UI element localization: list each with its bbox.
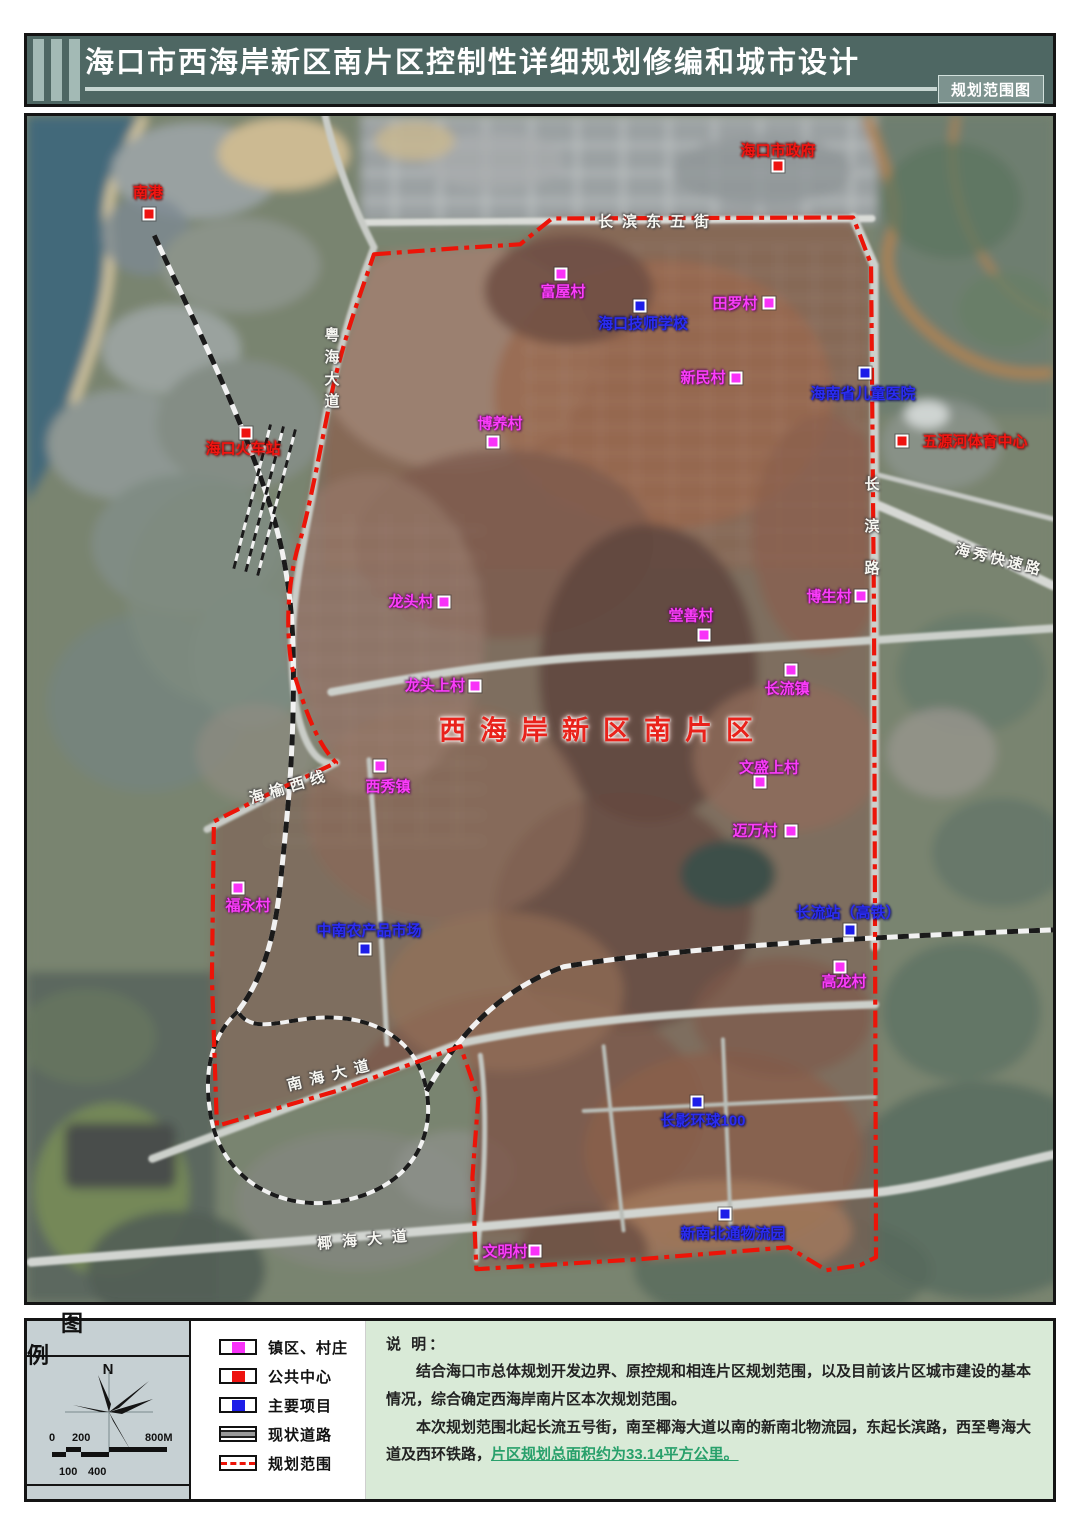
- map-label-changliu-hsr-station: 长流站（高铁）: [795, 906, 900, 921]
- map-label-haikou-railway-station: 海口火车站: [205, 442, 280, 457]
- legend-swatch-planning-scope: [219, 1455, 257, 1471]
- notes-paragraph-2: 本次规划范围北起长流五号街，南至椰海大道以南的新南北物流园，东起长滨路，西至粤海…: [386, 1414, 1035, 1470]
- map-label-longtoushang-village: 龙头上村: [405, 679, 465, 694]
- map-label-hainan-children-hospital: 海南省儿童医院: [810, 387, 915, 402]
- title-stripes-decoration: [33, 39, 80, 101]
- map-marker-changliu-hsr-station: [844, 924, 857, 937]
- notes-paragraph-1: 结合海口市总体规划开发边界、原控规和相连片区规划范围，以及目前该片区城市建设的基…: [386, 1358, 1035, 1414]
- legend-footer-band: [27, 1484, 189, 1499]
- map-label-longtou-village: 龙头村: [388, 595, 433, 610]
- legend-swatch-existing-road: [219, 1426, 257, 1442]
- legend-item-town-village: 镇区、村庄: [219, 1335, 365, 1359]
- map-label-wenming-village: 文明村: [482, 1245, 527, 1260]
- map-marker-wuyuanhe-sports: [896, 435, 909, 448]
- map-label-haiyu-west-line: 海榆西线: [248, 768, 333, 807]
- map-label-haixiu-expressway: 海秀快速路: [954, 542, 1045, 578]
- legend-swatch-town-village: [219, 1339, 257, 1355]
- map-labels-layer: 南港海口市政府海口火车站五源河体育中心富屋村田罗村新民村博养村龙头村堂善村博生村…: [27, 116, 1053, 1302]
- map-label-nangang: 南港: [133, 186, 163, 201]
- legend-title: 图 例: [27, 1321, 189, 1357]
- legend-swatch-major-project: [219, 1397, 257, 1413]
- map-label-xinmin-village: 新民村: [680, 371, 725, 386]
- map-label-tangshan-village: 堂善村: [668, 609, 713, 624]
- map-marker-wenshengshang-village: [754, 776, 767, 789]
- map-label-fuwu-village: 富屋村: [540, 285, 585, 300]
- map-label-yuehai-avenue: 粤海大道: [324, 327, 339, 415]
- map-marker-haikou-railway-station: [240, 427, 253, 440]
- map-marker-xinmin-village: [730, 372, 743, 385]
- legend-item-label: 主要项目: [268, 1395, 332, 1416]
- map-marker-haikou-gov: [772, 160, 785, 173]
- map-label-xinnanbei-logistics: 新南北通物流园: [680, 1227, 785, 1242]
- notes-panel: 说 明： 结合海口市总体规划开发边界、原控规和相连片区规划范围，以及目前该片区城…: [366, 1321, 1053, 1499]
- map-marker-changying-global-100: [691, 1096, 704, 1109]
- map-label-nanhai-avenue: 南海大道: [286, 1057, 379, 1094]
- map-marker-nangang: [143, 208, 156, 221]
- map-marker-tianluo-village: [763, 297, 776, 310]
- legend-item-existing-road: 现状道路: [219, 1422, 365, 1446]
- map-label-yehai-avenue: 椰海大道: [317, 1228, 418, 1252]
- map-marker-gaolong-village: [834, 961, 847, 974]
- map-marker-xixiu-town: [374, 760, 387, 773]
- legend-item-label: 规划范围: [268, 1453, 332, 1474]
- legend-item-label: 镇区、村庄: [268, 1337, 348, 1358]
- map-marker-haikou-technician-school: [634, 300, 647, 313]
- map-label-zhongnan-farm-market: 中南农产品市场: [316, 924, 421, 939]
- map-marker-tangshan-village: [698, 629, 711, 642]
- legend-item-planning-scope: 规划范围: [219, 1451, 365, 1475]
- map-label-xixiu-town: 西秀镇: [365, 780, 410, 795]
- map-type-badge: 规划范围图: [938, 75, 1044, 103]
- map-label-tianluo-village: 田罗村: [712, 297, 757, 312]
- legend-panel: 图 例 N 0 200 800M 10: [24, 1318, 1056, 1502]
- map-marker-changliu-town: [785, 664, 798, 677]
- map-label-gaolong-village: 高龙村: [821, 975, 866, 990]
- map-marker-boyang-village: [487, 436, 500, 449]
- map-label-boyang-village: 博养村: [477, 417, 522, 432]
- map-label-wenshengshang-village: 文盛上村: [739, 761, 799, 776]
- map-marker-fuyong-village: [232, 882, 245, 895]
- map-marker-fuwu-village: [555, 268, 568, 281]
- scale-bar: 0 200 800M 100 400: [39, 1432, 179, 1478]
- map-label-changying-global-100: 长影环球100: [660, 1114, 745, 1129]
- map-marker-maiwan-village: [785, 825, 798, 838]
- titlebar: 海口市西海岸新区南片区控制性详细规划修编和城市设计 规划范围图: [24, 33, 1056, 107]
- legend-swatch-public-center: [219, 1368, 257, 1384]
- map-label-wuyuanhe-sports: 五源河体育中心: [922, 435, 1027, 450]
- map-marker-xinnanbei-logistics: [719, 1208, 732, 1221]
- map-label-area-name: 西海岸新区南片区: [439, 718, 767, 745]
- legend-item-public-center: 公共中心: [219, 1364, 365, 1388]
- legend-item-label: 公共中心: [268, 1366, 332, 1387]
- legend-item-major-project: 主要项目: [219, 1393, 365, 1417]
- satellite-map: 南港海口市政府海口火车站五源河体育中心富屋村田罗村新民村博养村龙头村堂善村博生村…: [24, 113, 1056, 1305]
- title-underline: [85, 87, 937, 91]
- map-label-bosheng-village: 博生村: [806, 590, 851, 605]
- page-title: 海口市西海岸新区南片区控制性详细规划修编和城市设计: [85, 49, 937, 78]
- map-marker-longtoushang-village: [469, 680, 482, 693]
- scale-bar-segments: [52, 1447, 167, 1457]
- map-marker-wenming-village: [529, 1245, 542, 1258]
- map-marker-zhongnan-farm-market: [359, 943, 372, 956]
- map-label-haikou-gov: 海口市政府: [740, 144, 815, 159]
- map-label-changbin-east-5th-st: 长滨东五街: [598, 215, 718, 230]
- map-label-fuyong-village: 福永村: [225, 899, 270, 914]
- map-marker-hainan-children-hospital: [859, 367, 872, 380]
- notes-highlight: 片区规划总面积约为33.14平方公里。: [491, 1446, 739, 1463]
- legend-key-box: 图 例 N 0 200 800M 10: [27, 1321, 191, 1499]
- legend-item-label: 现状道路: [268, 1424, 332, 1445]
- page: 海口市西海岸新区南片区控制性详细规划修编和城市设计 规划范围图: [0, 0, 1080, 1527]
- map-label-maiwan-village: 迈万村: [732, 824, 777, 839]
- map-marker-longtou-village: [438, 596, 451, 609]
- legend-items: 镇区、村庄公共中心主要项目现状道路规划范围: [191, 1321, 366, 1499]
- map-label-changliu-town: 长流镇: [764, 682, 809, 697]
- map-label-changbin-road: 长滨路: [864, 476, 879, 602]
- map-label-haikou-technician-school: 海口技师学校: [598, 317, 688, 332]
- notes-heading: 说 明：: [386, 1333, 1035, 1354]
